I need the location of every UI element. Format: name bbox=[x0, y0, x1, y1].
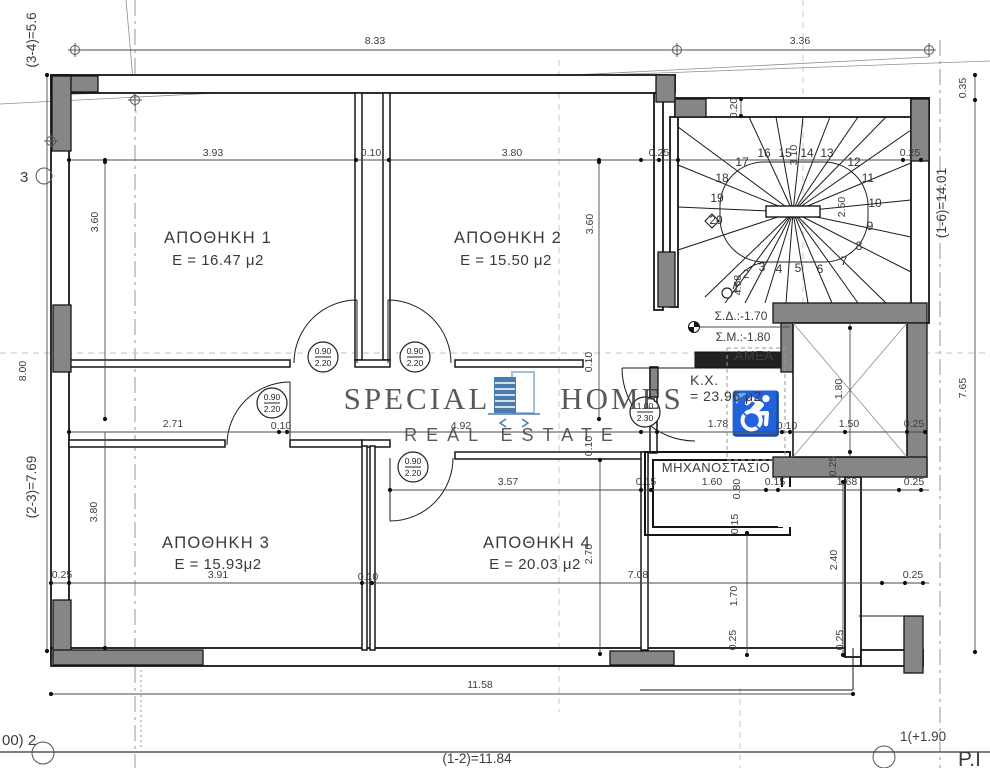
svg-text:9: 9 bbox=[867, 219, 874, 233]
floor-plan-svg: 1 2 3 4 5 6 7 8 9 10 11 12 13 14 15 16 1… bbox=[0, 0, 990, 768]
svg-text:0.90: 0.90 bbox=[264, 392, 281, 402]
svg-text:Σ.Μ.:-1.80: Σ.Μ.:-1.80 bbox=[716, 330, 771, 344]
svg-text:16: 16 bbox=[757, 146, 771, 160]
svg-text:0.90: 0.90 bbox=[405, 456, 422, 466]
door-tag-090-220-b: 0.90 2.20 bbox=[400, 342, 430, 372]
svg-text:8.00: 8.00 bbox=[17, 361, 29, 382]
svg-text:1.80: 1.80 bbox=[833, 379, 845, 400]
watermark: SPECIAL HOMES REAL ESTATE bbox=[344, 372, 684, 445]
svg-text:2.40: 2.40 bbox=[828, 550, 840, 571]
svg-text:0.20: 0.20 bbox=[728, 98, 740, 119]
svg-text:(3-4)=5.6: (3-4)=5.6 bbox=[24, 12, 39, 67]
svg-text:0.25: 0.25 bbox=[834, 630, 846, 651]
grid-3-label: 3 bbox=[20, 169, 28, 186]
svg-text:1.78: 1.78 bbox=[708, 418, 729, 430]
svg-text:0.25: 0.25 bbox=[903, 569, 924, 581]
svg-text:1.50: 1.50 bbox=[839, 418, 860, 430]
svg-text:11.58: 11.58 bbox=[467, 679, 493, 691]
svg-text:1.68: 1.68 bbox=[837, 476, 858, 488]
svg-text:3.93: 3.93 bbox=[203, 147, 224, 159]
svg-text:7.08: 7.08 bbox=[628, 569, 649, 581]
svg-text:11: 11 bbox=[862, 171, 875, 185]
amea-label: ΑΜΕΑ bbox=[735, 348, 774, 363]
door-tag-090-220-c: 0.90 2.20 bbox=[257, 388, 287, 418]
kx-area: = 23.96 μ2 bbox=[690, 388, 762, 404]
svg-text:0.10: 0.10 bbox=[583, 352, 595, 373]
door-tag-090-220-d: 0.90 2.20 bbox=[398, 452, 428, 482]
svg-text:2.71: 2.71 bbox=[163, 418, 184, 430]
svg-text:0.25: 0.25 bbox=[904, 476, 925, 488]
svg-text:7.65: 7.65 bbox=[957, 378, 969, 399]
svg-text:(1-6)=14.01: (1-6)=14.01 bbox=[934, 168, 949, 238]
stair-dim: 4.58 bbox=[732, 275, 744, 296]
svg-text:3.36: 3.36 bbox=[790, 35, 811, 47]
svg-text:3.57: 3.57 bbox=[498, 476, 519, 488]
svg-text:0.90: 0.90 bbox=[315, 346, 332, 356]
svg-text:2.20: 2.20 bbox=[407, 358, 424, 368]
svg-text:3.80: 3.80 bbox=[88, 502, 100, 523]
svg-text:18: 18 bbox=[715, 171, 729, 185]
svg-text:0.80: 0.80 bbox=[731, 479, 743, 500]
grid-2-label: 00) 2 bbox=[2, 732, 36, 749]
stair-entry-node bbox=[722, 288, 732, 298]
svg-text:3.60: 3.60 bbox=[584, 214, 596, 235]
room-3-name: ΑΠΟΘΗΚΗ 3 bbox=[162, 534, 270, 552]
room-3-area: E = 15.93μ2 bbox=[174, 556, 261, 573]
svg-text:17: 17 bbox=[735, 155, 749, 169]
svg-text:6: 6 bbox=[817, 262, 824, 276]
svg-text:0.25: 0.25 bbox=[904, 418, 925, 430]
svg-text:0.10: 0.10 bbox=[271, 420, 292, 432]
machine-room-label: ΜΗΧΑΝΟΣΤΑΣΙΟ bbox=[662, 460, 771, 475]
svg-text:14: 14 bbox=[800, 146, 814, 160]
stair-dim: 2.50 bbox=[836, 197, 848, 218]
grid-1-label: 1(+1.90 bbox=[900, 729, 946, 744]
svg-text:10: 10 bbox=[868, 196, 882, 210]
svg-text:7: 7 bbox=[841, 254, 848, 268]
survey-markers bbox=[44, 43, 936, 148]
pi-label: P.I bbox=[958, 748, 981, 768]
room-4-area: E = 20.03 μ2 bbox=[489, 556, 581, 573]
watermark-building-icon bbox=[488, 372, 540, 427]
svg-text:(2-3)=7.69: (2-3)=7.69 bbox=[24, 456, 39, 519]
svg-text:0.15: 0.15 bbox=[765, 476, 786, 488]
svg-text:0.35: 0.35 bbox=[957, 78, 969, 99]
svg-text:0.10: 0.10 bbox=[358, 571, 379, 583]
svg-text:2.20: 2.20 bbox=[264, 404, 281, 414]
room-2-area: E = 15.50 μ2 bbox=[460, 252, 552, 269]
stair-step-numbers: 1 2 3 4 5 6 7 8 9 10 11 12 13 14 15 16 1… bbox=[709, 146, 882, 295]
watermark-word1: SPECIAL bbox=[344, 381, 491, 416]
watermark-word2: HOMES bbox=[560, 381, 684, 416]
floor-plan-canvas: 1 2 3 4 5 6 7 8 9 10 11 12 13 14 15 16 1… bbox=[0, 0, 990, 768]
svg-text:(1-2)=11.84: (1-2)=11.84 bbox=[442, 751, 512, 766]
svg-text:5: 5 bbox=[795, 261, 802, 275]
staircase: 1 2 3 4 5 6 7 8 9 10 11 12 13 14 15 16 1… bbox=[678, 117, 911, 303]
svg-text:0.25: 0.25 bbox=[52, 569, 73, 581]
svg-text:0.25: 0.25 bbox=[900, 147, 921, 159]
svg-text:19: 19 bbox=[710, 191, 724, 205]
stair-dim: 3.10 bbox=[788, 145, 800, 166]
svg-text:0.90: 0.90 bbox=[407, 346, 424, 356]
door-tag-090-220-a: 0.90 2.20 bbox=[308, 342, 338, 372]
svg-text:3: 3 bbox=[759, 260, 766, 274]
svg-text:2.20: 2.20 bbox=[405, 468, 422, 478]
svg-text:3.60: 3.60 bbox=[89, 212, 101, 233]
svg-text:0.15: 0.15 bbox=[729, 514, 741, 535]
svg-text:1.70: 1.70 bbox=[728, 586, 740, 607]
svg-text:2.20: 2.20 bbox=[315, 358, 332, 368]
svg-text:3.80: 3.80 bbox=[502, 147, 523, 159]
svg-text:0.10: 0.10 bbox=[777, 420, 798, 432]
svg-text:0.25: 0.25 bbox=[827, 456, 839, 477]
svg-text:0.15: 0.15 bbox=[636, 476, 657, 488]
svg-text:4: 4 bbox=[776, 262, 783, 276]
svg-text:0.25: 0.25 bbox=[727, 630, 739, 651]
room-1-area: E = 16.47 μ2 bbox=[172, 252, 264, 269]
svg-text:13: 13 bbox=[820, 146, 834, 160]
svg-text:0.10: 0.10 bbox=[361, 147, 382, 159]
svg-text:Σ.Δ.:-1.70: Σ.Δ.:-1.70 bbox=[715, 309, 768, 323]
svg-text:0.25: 0.25 bbox=[649, 147, 670, 159]
svg-text:12: 12 bbox=[847, 155, 861, 169]
svg-text:8: 8 bbox=[856, 239, 863, 253]
room-2-name: ΑΠΟΘΗΚΗ 2 bbox=[454, 229, 562, 247]
room-1-name: ΑΠΟΘΗΚΗ 1 bbox=[164, 229, 272, 247]
svg-text:20: 20 bbox=[709, 213, 723, 227]
watermark-line2: REAL ESTATE bbox=[404, 425, 622, 445]
stair-newel bbox=[766, 206, 820, 217]
svg-text:8.33: 8.33 bbox=[365, 35, 386, 47]
svg-text:1.60: 1.60 bbox=[702, 476, 723, 488]
room-4-name: ΑΠΟΘΗΚΗ 4 bbox=[483, 534, 591, 552]
kx-label: K.X. bbox=[690, 372, 718, 388]
